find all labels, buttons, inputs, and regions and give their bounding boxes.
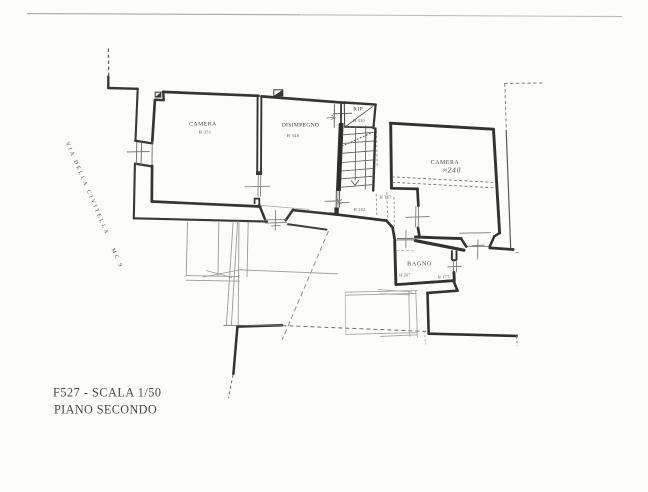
svg-text:F527 - SCALA 1/50: F527 - SCALA 1/50 [53, 386, 162, 400]
svg-text:DISIMPEGNO: DISIMPEGNO [282, 123, 320, 129]
svg-text:PIANO SECONDO: PIANO SECONDO [54, 403, 157, 417]
svg-text:H 351: H 351 [199, 129, 212, 134]
svg-text:CAMERA: CAMERA [189, 122, 217, 128]
svg-text:H 330: H 330 [353, 118, 365, 123]
svg-text:≈240: ≈240 [443, 166, 461, 175]
svg-text:H 202: H 202 [354, 207, 366, 212]
svg-text:RIP.: RIP. [353, 107, 364, 113]
svg-text:H 187: H 187 [380, 195, 392, 200]
svg-text:H 340: H 340 [287, 133, 300, 138]
svg-text:BAGNO: BAGNO [407, 261, 432, 267]
svg-text:H 207: H 207 [399, 273, 411, 278]
svg-text:H 177: H 177 [438, 275, 450, 280]
